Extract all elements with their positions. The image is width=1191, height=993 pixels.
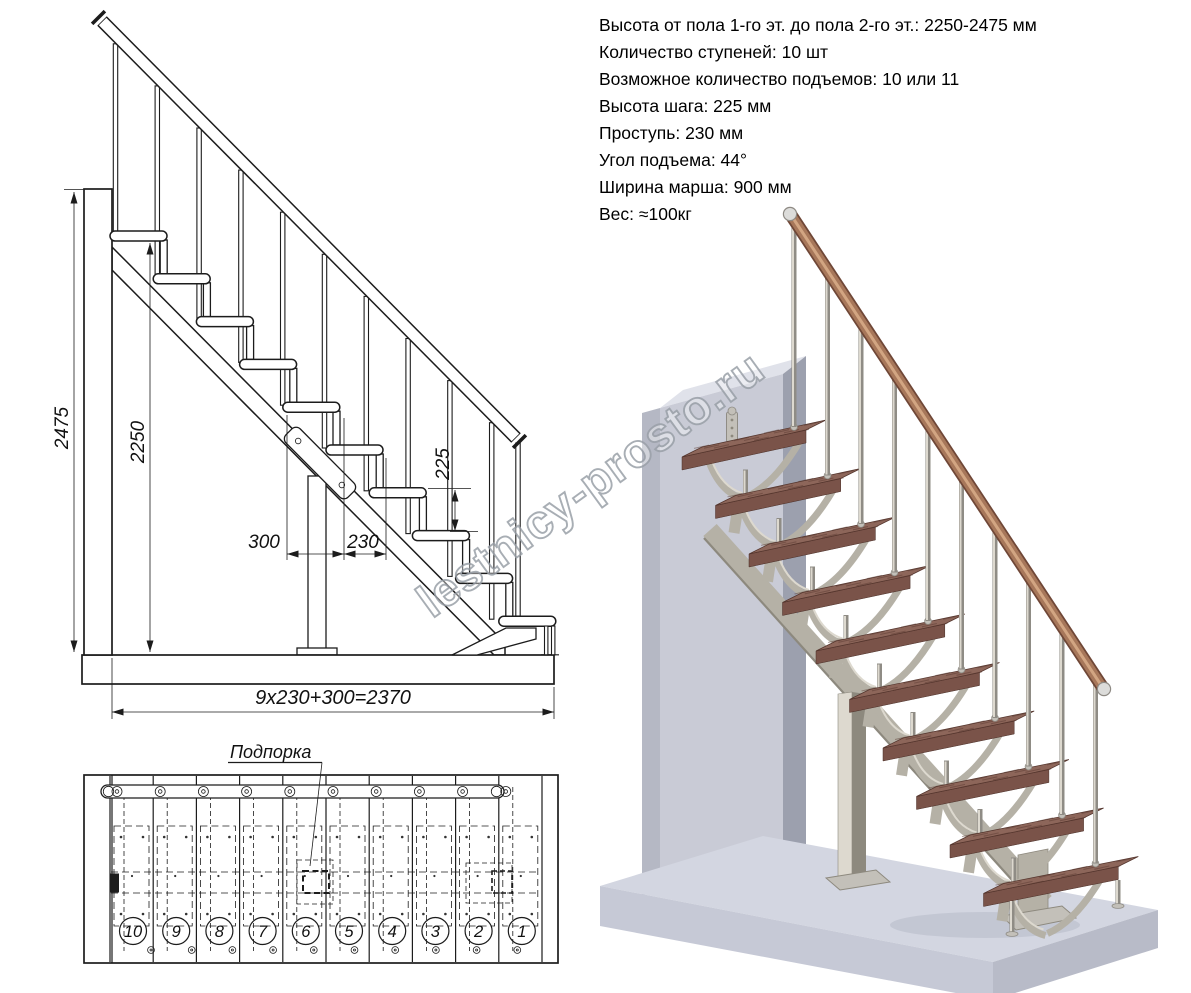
screw-dot [477,875,479,877]
specifications: Высота от пола 1-го эт. до пола 2-го эт.… [599,15,1037,224]
stair-plan-view: 10987654321 Подпорка [84,742,558,963]
plan-stringer-wall-anchor [110,874,119,893]
screw-dot [185,836,188,839]
step-number: 6 [301,923,311,941]
tread [326,445,383,455]
screw-dot [228,836,231,839]
step-number: 4 [388,923,397,941]
front-leg [545,626,548,655]
screw-dot [358,836,361,839]
screw-dot [433,875,435,877]
spec-line: Ширина марша: 900 мм [599,177,792,197]
screw-dot [131,875,133,877]
screw-dot [206,913,209,916]
riser-support [506,582,513,616]
screw-dot [509,836,512,839]
riser-support [333,411,340,445]
tread [110,231,167,241]
screw-dot [315,913,318,916]
dim-tread-depth: 300 [248,532,280,553]
screw-dot [304,875,306,877]
screw-dot [531,913,534,916]
tread [283,402,340,412]
screw-dot [336,836,339,839]
baluster [239,170,243,362]
spec-line: Проступь: 230 мм [599,123,743,143]
baluster [155,86,159,277]
upper-floor-wall [84,189,112,655]
riser-support [419,497,426,531]
screw-dot [465,913,468,916]
handrail-highlight [789,212,1101,685]
screw-dot [379,836,382,839]
bracket-hole [731,419,734,422]
screw-dot [120,836,123,839]
spec-line: Угол подъема: 44° [599,150,747,170]
screw-dot [142,836,145,839]
dim-floor-to-top-step: 2250 [128,420,149,464]
screw-dot [390,875,392,877]
spec-line: Высота шага: 225 мм [599,96,771,116]
support-post [308,476,326,652]
screw-dot [379,913,382,916]
wall-left-face [642,408,660,896]
step-number: 10 [124,923,143,941]
handrail-cap [783,207,796,220]
support-label: Подпорка [230,742,311,762]
screw-dot [444,836,447,839]
tread [369,488,426,498]
tread [196,317,253,327]
riser-support [290,368,297,402]
screw-dot [315,836,318,839]
front-leg [552,626,555,655]
step-number: 8 [215,923,225,941]
screw-dot [465,836,468,839]
dim-run: 230 [346,532,379,553]
baluster [364,296,368,490]
support-column [838,692,852,886]
stair-3d-render [600,207,1158,993]
screw-dot [336,913,339,916]
spec-line: Высота от пола 1-го эт. до пола 2-го эт.… [599,15,1037,35]
screw-dot [509,913,512,916]
screw-dot [185,913,188,916]
drawing-canvas: 2475 2250 300 230 225 9x230+300=2370 109… [0,0,1191,993]
screw-dot [217,875,219,877]
screw-dot [401,913,404,916]
screw-dot [271,913,274,916]
screw-dot [249,913,252,916]
bracket-hole [731,435,734,438]
spec-line: Количество ступеней: 10 шт [599,42,828,62]
screw-dot [163,836,166,839]
screw-dot [206,836,209,839]
screw-dot [422,836,425,839]
leg-foot [1006,932,1018,937]
bracket-hole [731,427,734,430]
step-number: 2 [473,923,483,941]
staircase-drawing-sheet: 2475 2250 300 230 225 9x230+300=2370 109… [0,0,1191,993]
baluster [281,212,285,405]
screw-dot [174,875,176,877]
screw-dot [293,913,296,916]
riser-support [247,326,254,360]
tread [499,616,556,626]
baluster [113,44,117,234]
screw-dot [487,913,490,916]
tread [240,359,297,369]
baluster [406,339,410,534]
screw-dot [401,836,404,839]
plan-outline [84,775,558,963]
leg-foot [1112,904,1124,909]
tread [412,531,469,541]
baluster [197,128,201,320]
screw-dot [249,836,252,839]
screw-dot [487,836,490,839]
step-number: 5 [344,923,354,941]
spec-line: Вес: ≈100кг [599,204,692,224]
floor-slab [82,655,554,684]
step-number: 7 [258,923,268,941]
step-number: 3 [431,923,441,941]
screw-dot [120,913,123,916]
dim-total-run: 9x230+300=2370 [255,687,411,709]
riser-support [203,283,210,317]
spec-line: Возможное количество подъемов: 10 или 11 [599,69,959,89]
riser-support [376,454,383,488]
screw-dot [347,875,349,877]
screw-dot [520,875,522,877]
screw-dot [163,913,166,916]
screw-dot [358,913,361,916]
baluster [322,254,326,448]
screw-dot [444,913,447,916]
riser-support [160,240,167,274]
screw-dot [228,913,231,916]
step-number: 1 [517,923,526,941]
screw-dot [261,875,263,877]
step-number: 9 [172,923,181,941]
screw-dot [531,836,534,839]
dim-rise: 225 [433,448,454,481]
handrail-cap [1097,682,1110,695]
screw-dot [422,913,425,916]
support-post-base [297,648,337,655]
screw-dot [271,836,274,839]
dim-total-height: 2475 [52,406,73,450]
tread [153,274,210,284]
screw-dot [142,913,145,916]
screw-dot [293,836,296,839]
stair-side-view: 2475 2250 300 230 225 9x230+300=2370 [52,11,559,719]
